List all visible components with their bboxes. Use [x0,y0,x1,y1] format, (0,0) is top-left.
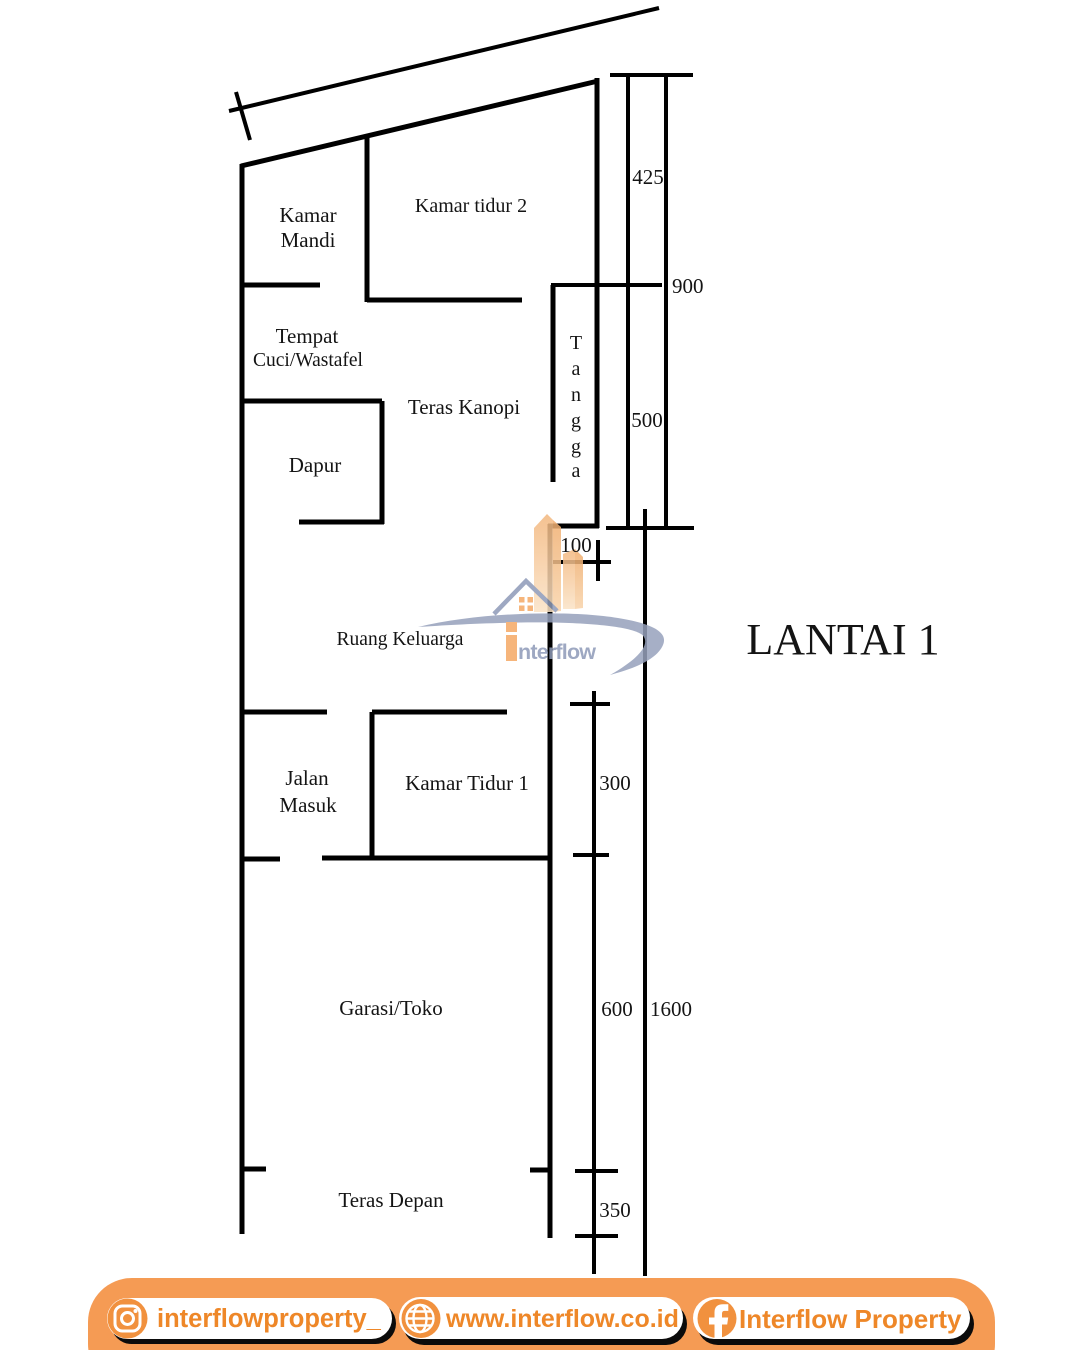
svg-text:300: 300 [599,771,631,795]
svg-text:nterflow: nterflow [518,640,596,664]
svg-text:interflowproperty_: interflowproperty_ [157,1305,382,1333]
svg-text:Teras Depan: Teras Depan [338,1188,444,1212]
svg-text:Kamar Tidur 1: Kamar Tidur 1 [405,771,529,795]
svg-text:Tempat: Tempat [276,324,339,348]
svg-text:Kamar tidur 2: Kamar tidur 2 [415,195,527,217]
svg-text:Kamar: Kamar [279,203,336,227]
svg-text:a: a [572,358,581,380]
svg-text:www.interflow.co.id: www.interflow.co.id [445,1305,679,1333]
svg-text:1600: 1600 [650,997,692,1021]
svg-text:a: a [572,460,581,482]
svg-text:LANTAI 1: LANTAI 1 [746,615,939,664]
svg-text:100: 100 [560,533,592,557]
svg-text:Ruang Keluarga: Ruang Keluarga [337,629,464,650]
svg-text:Cuci/Wastafel: Cuci/Wastafel [253,350,364,371]
svg-text:600: 600 [601,997,633,1021]
svg-text:g: g [571,410,581,432]
svg-text:n: n [571,384,581,406]
svg-text:900: 900 [672,274,704,298]
svg-text:Dapur: Dapur [289,453,341,477]
svg-text:Interflow Property: Interflow Property [739,1304,962,1334]
svg-text:Masuk: Masuk [279,793,337,817]
svg-text:T: T [570,332,582,354]
svg-text:g: g [571,436,581,458]
svg-text:425: 425 [632,165,664,189]
svg-text:Teras Kanopi: Teras Kanopi [408,395,520,419]
svg-text:Mandi: Mandi [281,228,336,252]
svg-text:500: 500 [631,408,663,432]
svg-text:350: 350 [599,1198,631,1222]
svg-text:Garasi/Toko: Garasi/Toko [339,996,443,1020]
svg-text:Jalan: Jalan [285,766,329,790]
